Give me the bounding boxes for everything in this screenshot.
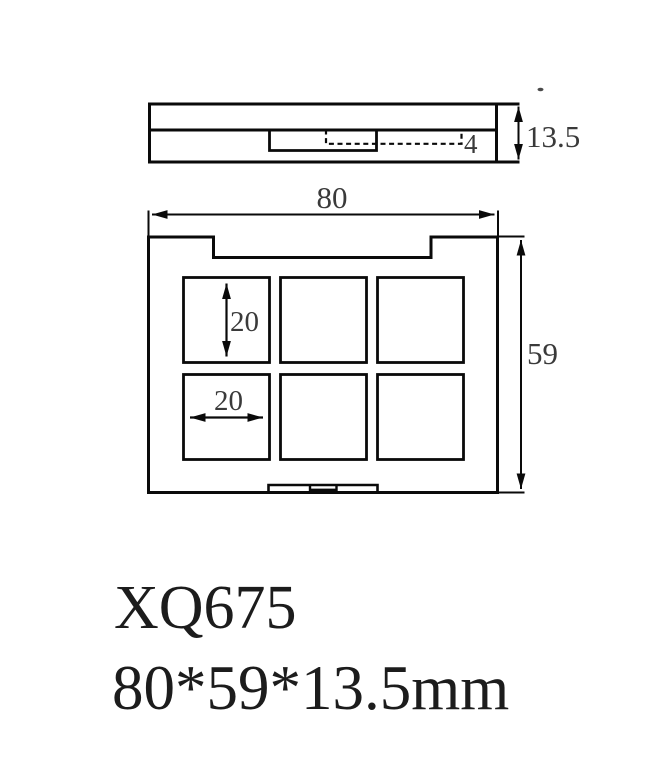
pan-height-label: 20	[230, 306, 259, 338]
pan-cell	[281, 278, 367, 363]
height-dimension-label: 59	[527, 336, 558, 371]
depth-dimension-label: 13.5	[526, 119, 580, 154]
width-dimension-label: 80	[317, 180, 348, 215]
case-outline	[149, 237, 498, 493]
side-view: 4 13.5	[148, 88, 580, 164]
drawing-sheet: 4 13.5 80 59	[0, 0, 667, 772]
top-view: 80 59 20 20	[149, 180, 559, 493]
pan-cell	[378, 375, 464, 460]
speck-mark	[538, 88, 544, 91]
latch-recess-outline	[270, 130, 377, 151]
slot-depth-label: 4	[464, 129, 478, 159]
pan-cell	[378, 278, 464, 363]
model-number: XQ675	[114, 574, 297, 642]
caption: XQ675 80*59*13.5mm	[112, 574, 509, 723]
pan-cell	[281, 375, 367, 460]
hidden-slot-dashed-line	[326, 130, 462, 144]
technical-drawing: 4 13.5 80 59	[0, 0, 667, 772]
product-dimensions: 80*59*13.5mm	[112, 653, 509, 723]
pan-width-label: 20	[214, 385, 243, 417]
